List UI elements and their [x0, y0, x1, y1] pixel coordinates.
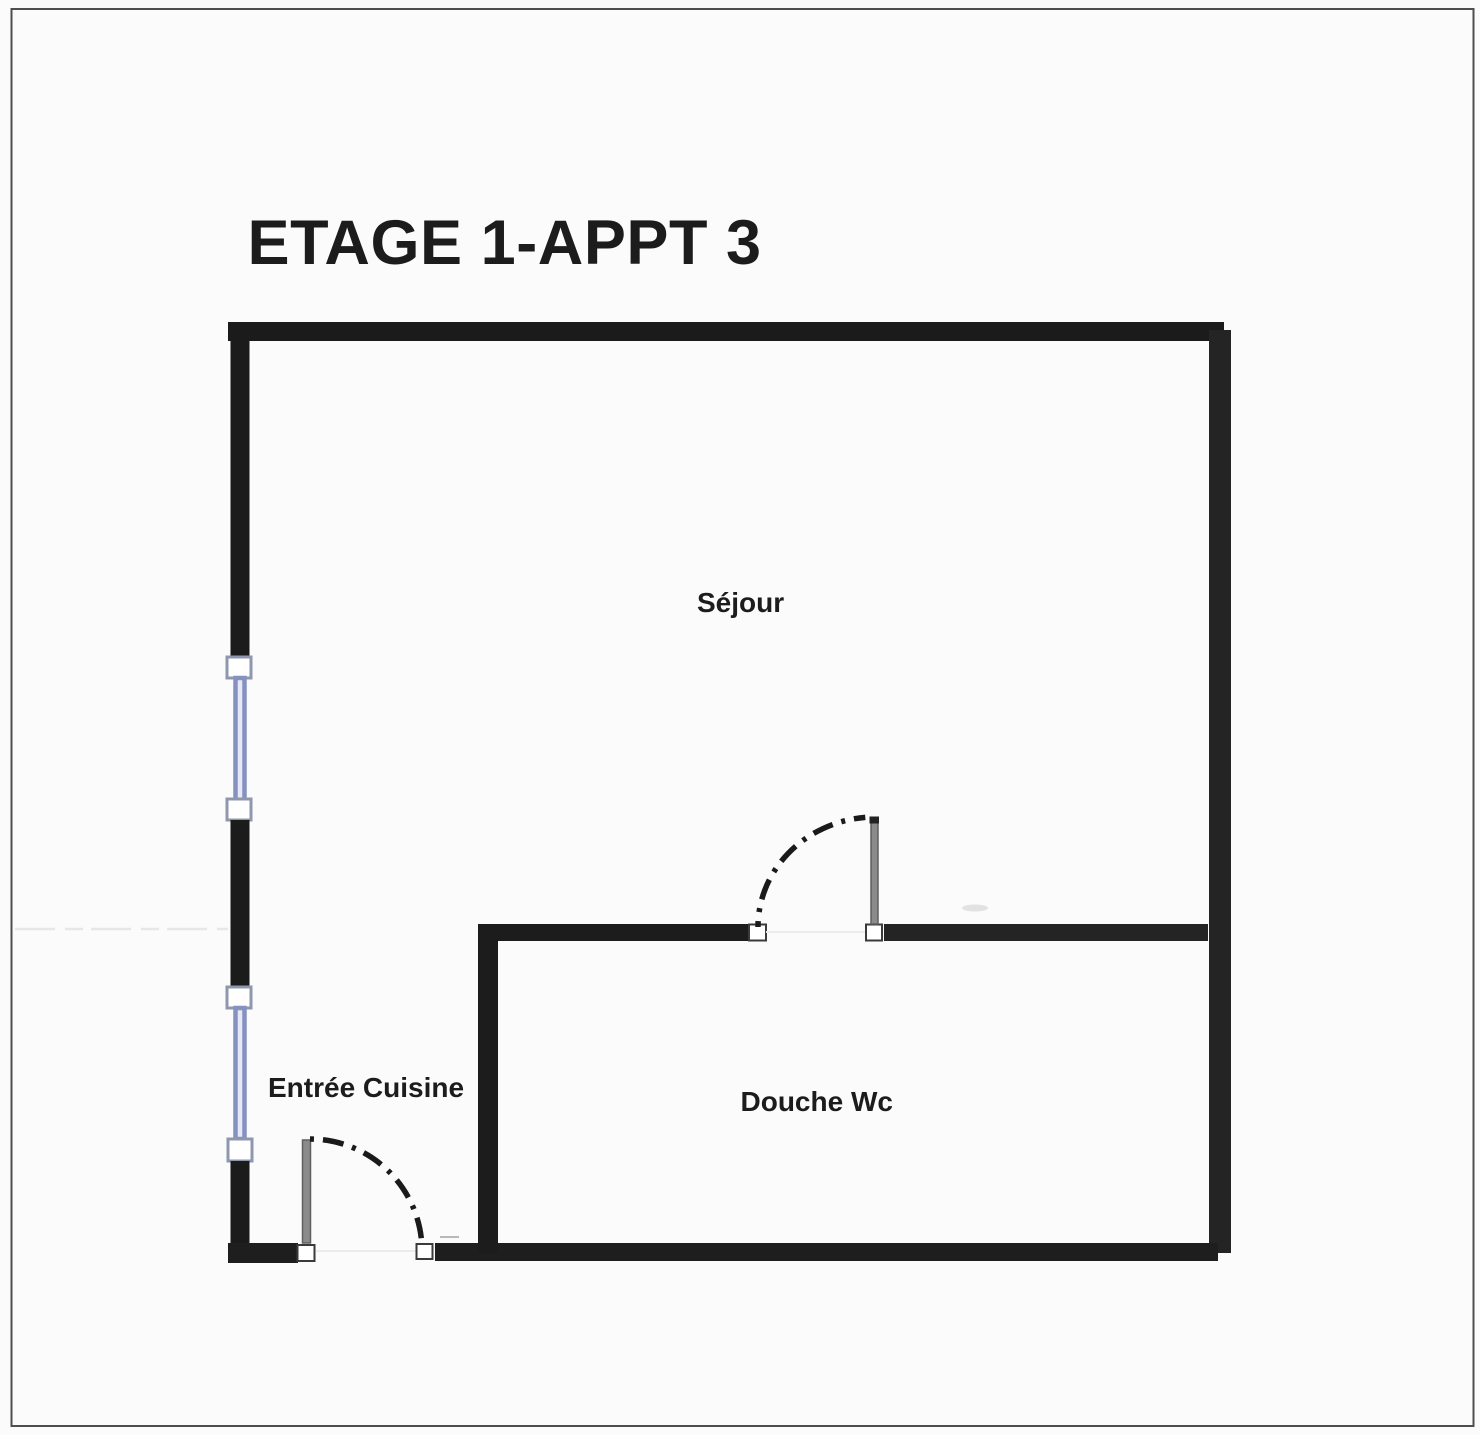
svg-text:Douche Wc: Douche Wc [741, 1086, 893, 1117]
svg-text:Entrée Cuisine: Entrée Cuisine [268, 1072, 464, 1103]
svg-text:Séjour: Séjour [697, 587, 784, 618]
svg-text:ETAGE 1-APPT 3: ETAGE 1-APPT 3 [248, 208, 762, 278]
